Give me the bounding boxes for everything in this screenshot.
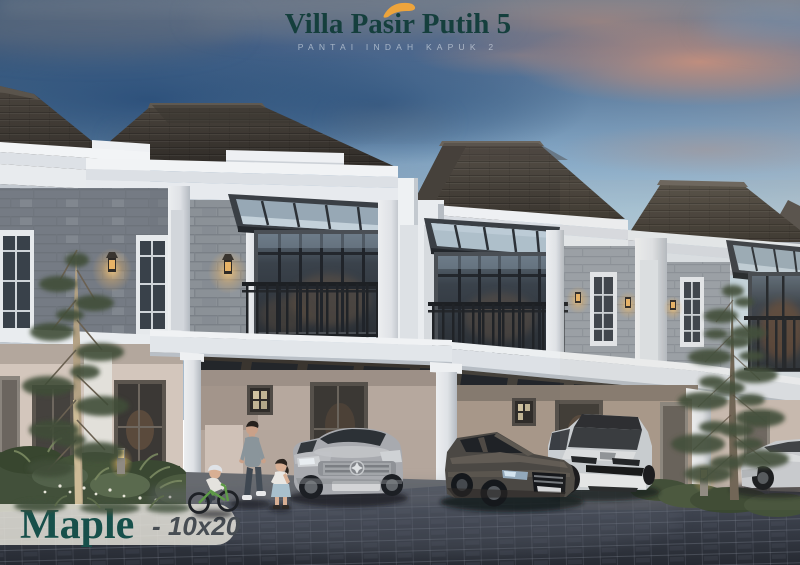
svg-text:PANTAI INDAH KAPUK 2: PANTAI INDAH KAPUK 2 [298,42,499,52]
svg-text:Villa Pasir Putih 5: Villa Pasir Putih 5 [285,8,511,40]
